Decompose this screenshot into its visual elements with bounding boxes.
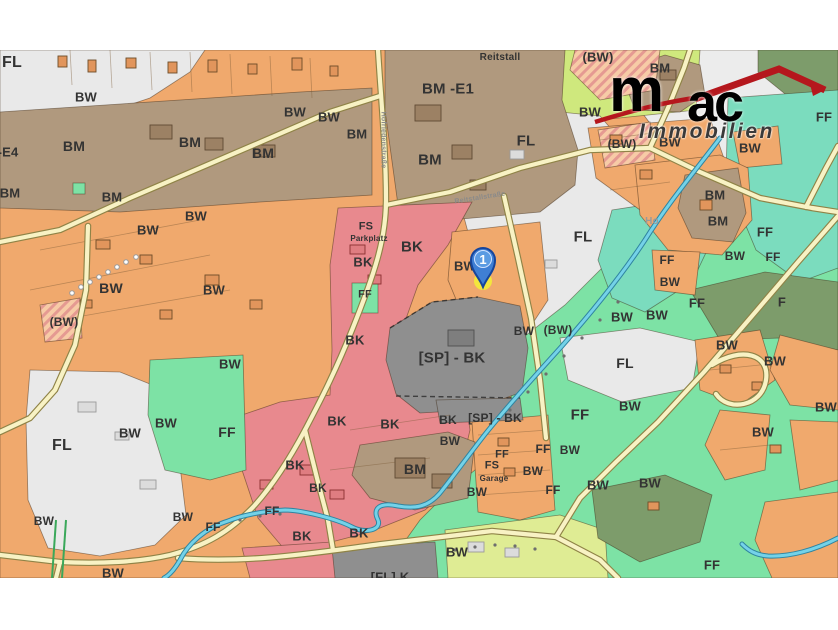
logo-letter-m: m xyxy=(609,60,660,122)
marker-number: 1 xyxy=(479,252,486,267)
logo-subtitle: Immobilien xyxy=(639,120,775,144)
map-marker-1[interactable]: 1 xyxy=(465,241,501,293)
zoning-map[interactable]: FLBWBM-E4BMBMBMBMBMBWBWBWBW(BW)BWFFFLBWB… xyxy=(0,50,838,578)
listing-map-page: FLBWBM-E4BMBMBMBMBMBWBWBWBW(BW)BWFFFLBWB… xyxy=(0,0,838,630)
brand-logo: m ac Immobilien xyxy=(583,62,838,144)
